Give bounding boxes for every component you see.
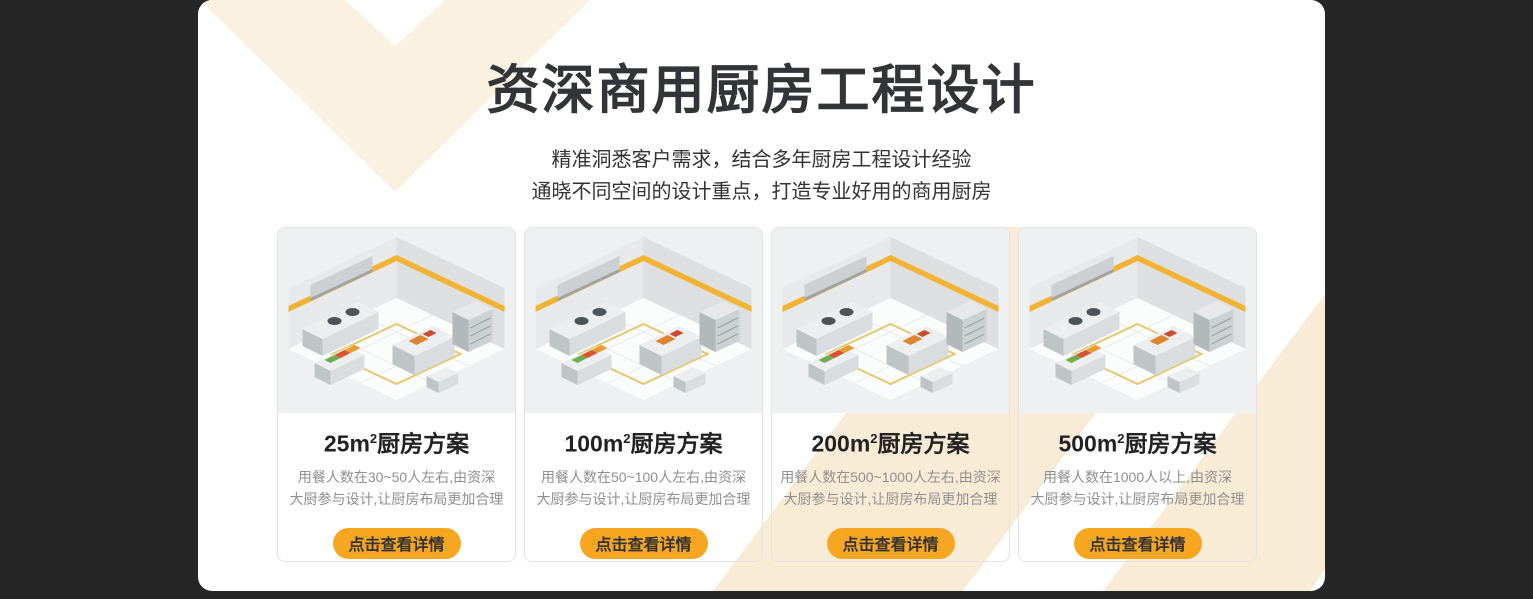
card-title: 100m2厨房方案 (564, 425, 722, 458)
view-details-button[interactable]: 点击查看详情 (1074, 528, 1202, 559)
card-description-line-1: 用餐人数在50~100人左右,由资深 (541, 469, 746, 485)
card-description-line-2: 大厨参与设计,让厨房布局更加合理 (784, 491, 998, 507)
page-background: 资深商用厨房工程设计 精准洞悉客户需求，结合多年厨房工程设计经验 通晓不同空间的… (0, 0, 1533, 599)
card-title: 25m2厨房方案 (324, 425, 469, 458)
kitchen-plan-card-25sqm: 25m2厨房方案 用餐人数在30~50人左右,由资深大厨参与设计,让厨房布局更加… (277, 227, 516, 562)
card-description: 用餐人数在500~1000人左右,由资深大厨参与设计,让厨房布局更加合理 (780, 466, 1001, 510)
card-description-line-1: 用餐人数在500~1000人左右,由资深 (780, 469, 1001, 485)
kitchen-plan-card-100sqm: 100m2厨房方案 用餐人数在50~100人左右,由资深大厨参与设计,让厨房布局… (524, 227, 763, 562)
kitchen-plan-card-200sqm: 200m2厨房方案 用餐人数在500~1000人左右,由资深大厨参与设计,让厨房… (771, 227, 1010, 562)
page-subtitle: 精准洞悉客户需求，结合多年厨房工程设计经验 通晓不同空间的设计重点，打造专业好用… (198, 144, 1325, 208)
card-title-size: 200m (811, 431, 870, 457)
card-description: 用餐人数在30~50人左右,由资深大厨参与设计,让厨房布局更加合理 (290, 466, 504, 510)
card-title-size: 500m (1058, 431, 1117, 457)
card-description-line-2: 大厨参与设计,让厨房布局更加合理 (1031, 491, 1245, 507)
card-description-line-1: 用餐人数在30~50人左右,由资深 (298, 469, 495, 485)
view-details-button[interactable]: 点击查看详情 (827, 528, 955, 559)
card-title: 200m2厨房方案 (811, 425, 969, 458)
card-title-size: 25m (324, 431, 370, 457)
card-title: 500m2厨房方案 (1058, 425, 1216, 458)
kitchen-render-image (772, 228, 1009, 413)
subtitle-line-1: 精准洞悉客户需求，结合多年厨房工程设计经验 (198, 144, 1325, 176)
view-details-button[interactable]: 点击查看详情 (333, 528, 461, 559)
card-title-size: 100m (564, 431, 623, 457)
card-title-text: 厨房方案 (631, 431, 723, 457)
card-title-superscript: 2 (623, 431, 630, 446)
card-title-text: 厨房方案 (878, 431, 970, 457)
card-title-text: 厨房方案 (1125, 431, 1217, 457)
section-header: 资深商用厨房工程设计 精准洞悉客户需求，结合多年厨房工程设计经验 通晓不同空间的… (198, 0, 1325, 208)
content-panel: 资深商用厨房工程设计 精准洞悉客户需求，结合多年厨房工程设计经验 通晓不同空间的… (198, 0, 1325, 591)
kitchen-render-image (1019, 228, 1256, 413)
card-title-superscript: 2 (870, 431, 877, 446)
subtitle-line-2: 通晓不同空间的设计重点，打造专业好用的商用厨房 (198, 176, 1325, 208)
isometric-kitchen-illustration (772, 228, 1009, 413)
isometric-kitchen-illustration (1019, 228, 1256, 413)
kitchen-render-image (278, 228, 515, 413)
kitchen-plan-card-list: 25m2厨房方案 用餐人数在30~50人左右,由资深大厨参与设计,让厨房布局更加… (277, 227, 1257, 562)
isometric-kitchen-illustration (278, 228, 515, 413)
view-details-button[interactable]: 点击查看详情 (580, 528, 708, 559)
kitchen-plan-card-500sqm: 500m2厨房方案 用餐人数在1000人以上,由资深大厨参与设计,让厨房布局更加… (1018, 227, 1257, 562)
card-description-line-2: 大厨参与设计,让厨房布局更加合理 (290, 491, 504, 507)
card-description: 用餐人数在1000人以上,由资深大厨参与设计,让厨房布局更加合理 (1031, 466, 1245, 510)
card-description: 用餐人数在50~100人左右,由资深大厨参与设计,让厨房布局更加合理 (537, 466, 751, 510)
card-description-line-2: 大厨参与设计,让厨房布局更加合理 (537, 491, 751, 507)
card-title-superscript: 2 (1117, 431, 1124, 446)
card-description-line-1: 用餐人数在1000人以上,由资深 (1043, 469, 1232, 485)
isometric-kitchen-illustration (525, 228, 762, 413)
page-title: 资深商用厨房工程设计 (198, 48, 1325, 124)
kitchen-render-image (525, 228, 762, 413)
card-title-text: 厨房方案 (377, 431, 469, 457)
